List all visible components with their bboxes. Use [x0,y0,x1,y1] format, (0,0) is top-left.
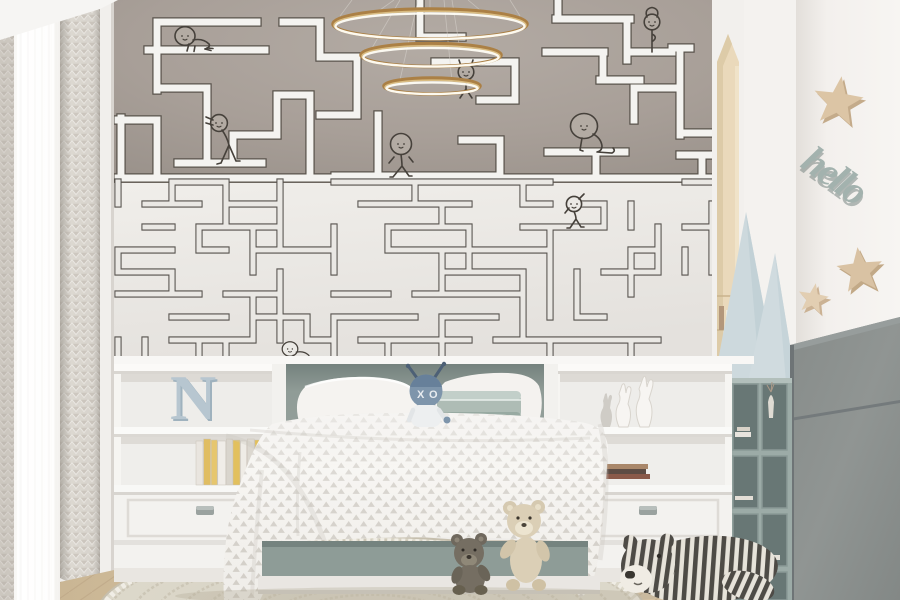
svg-text:O: O [429,389,438,401]
svg-text:N: N [170,362,216,433]
svg-text:X: X [417,389,425,401]
